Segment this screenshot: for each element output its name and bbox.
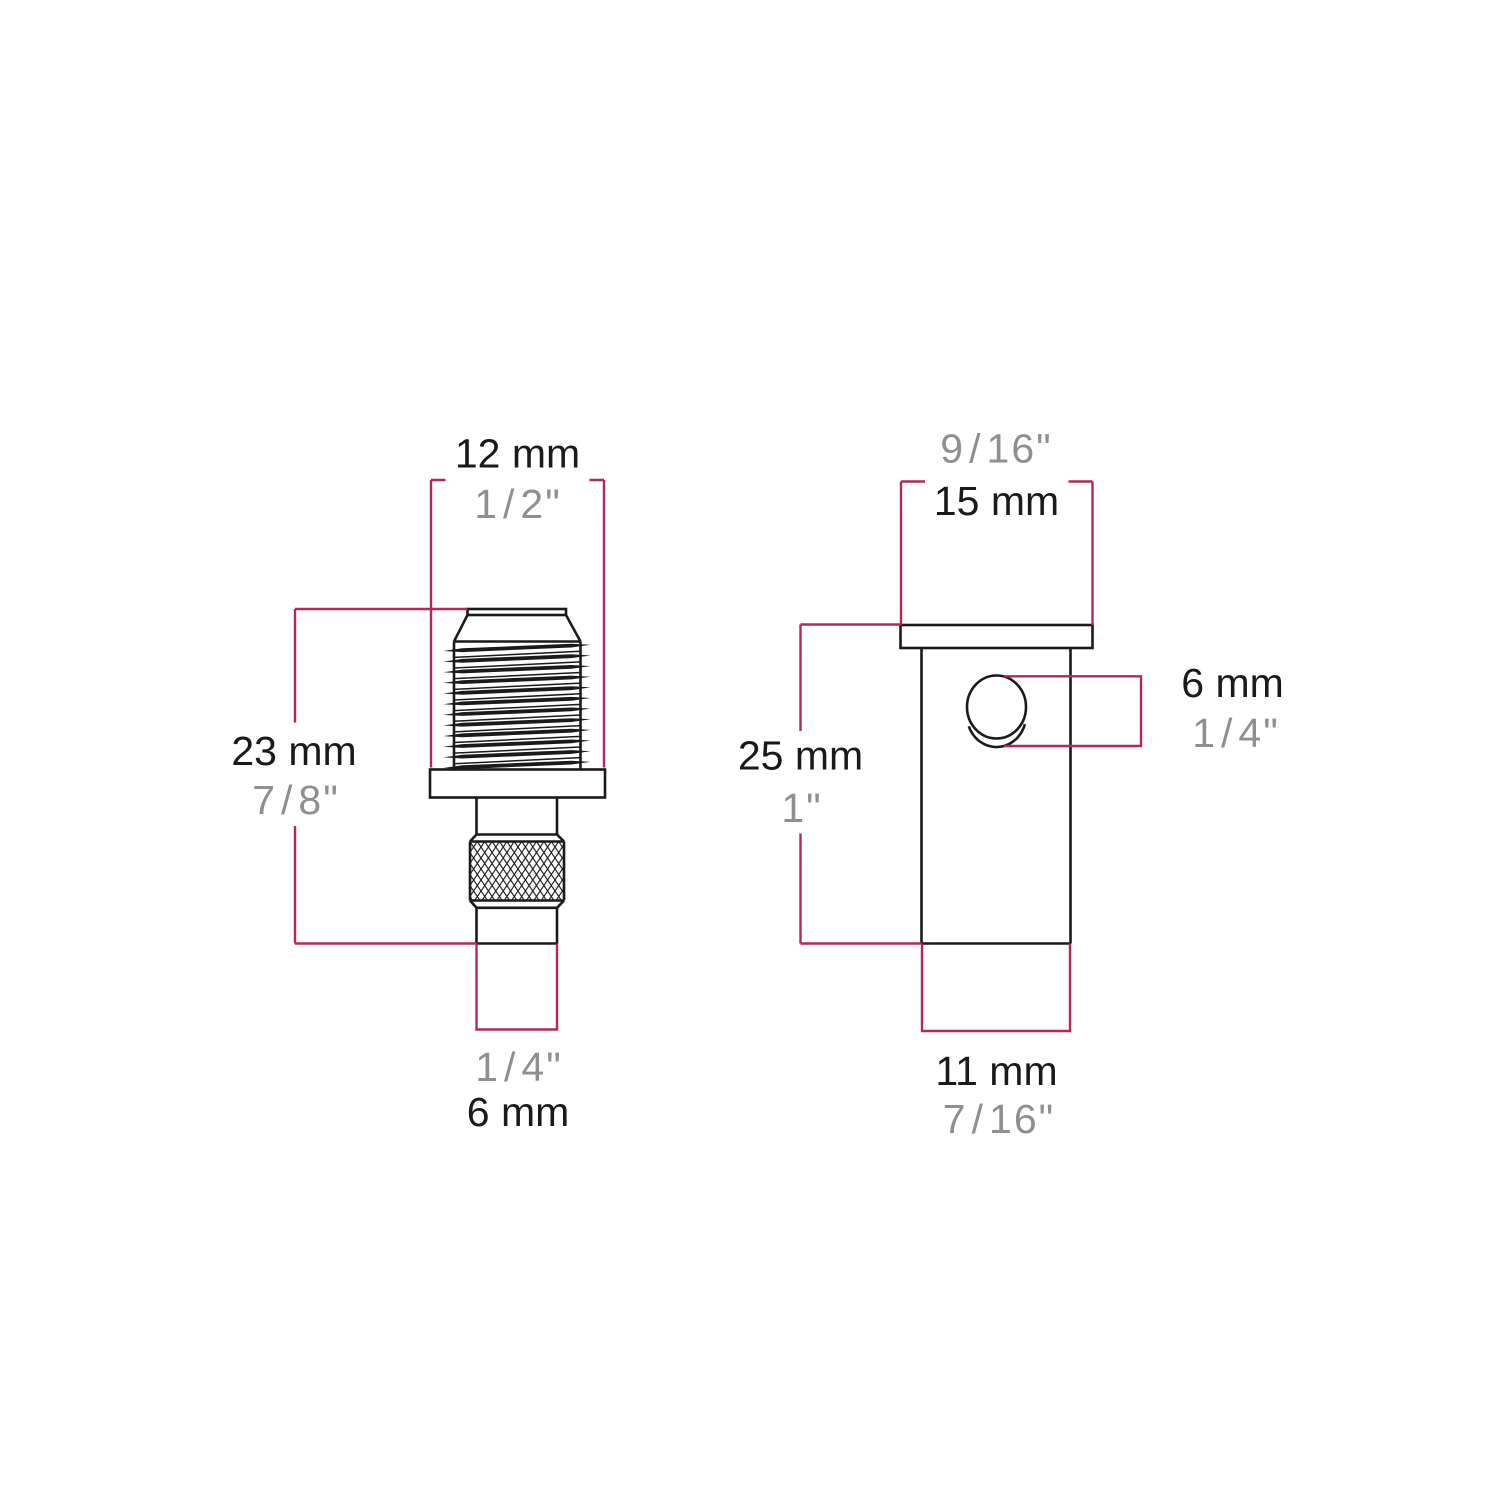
svg-text:11 mm: 11 mm bbox=[935, 1048, 1057, 1094]
svg-text:1": 1" bbox=[781, 785, 822, 831]
svg-text:15 mm: 15 mm bbox=[934, 478, 1059, 524]
svg-text:25 mm: 25 mm bbox=[738, 733, 863, 779]
svg-text:12 mm: 12 mm bbox=[455, 431, 580, 477]
svg-text:6 mm: 6 mm bbox=[1181, 660, 1284, 706]
svg-text:23 mm: 23 mm bbox=[231, 728, 356, 774]
svg-text:6 mm: 6 mm bbox=[467, 1089, 570, 1135]
svg-text:7/16": 7/16" bbox=[943, 1096, 1055, 1142]
svg-text:9/16": 9/16" bbox=[940, 426, 1052, 472]
